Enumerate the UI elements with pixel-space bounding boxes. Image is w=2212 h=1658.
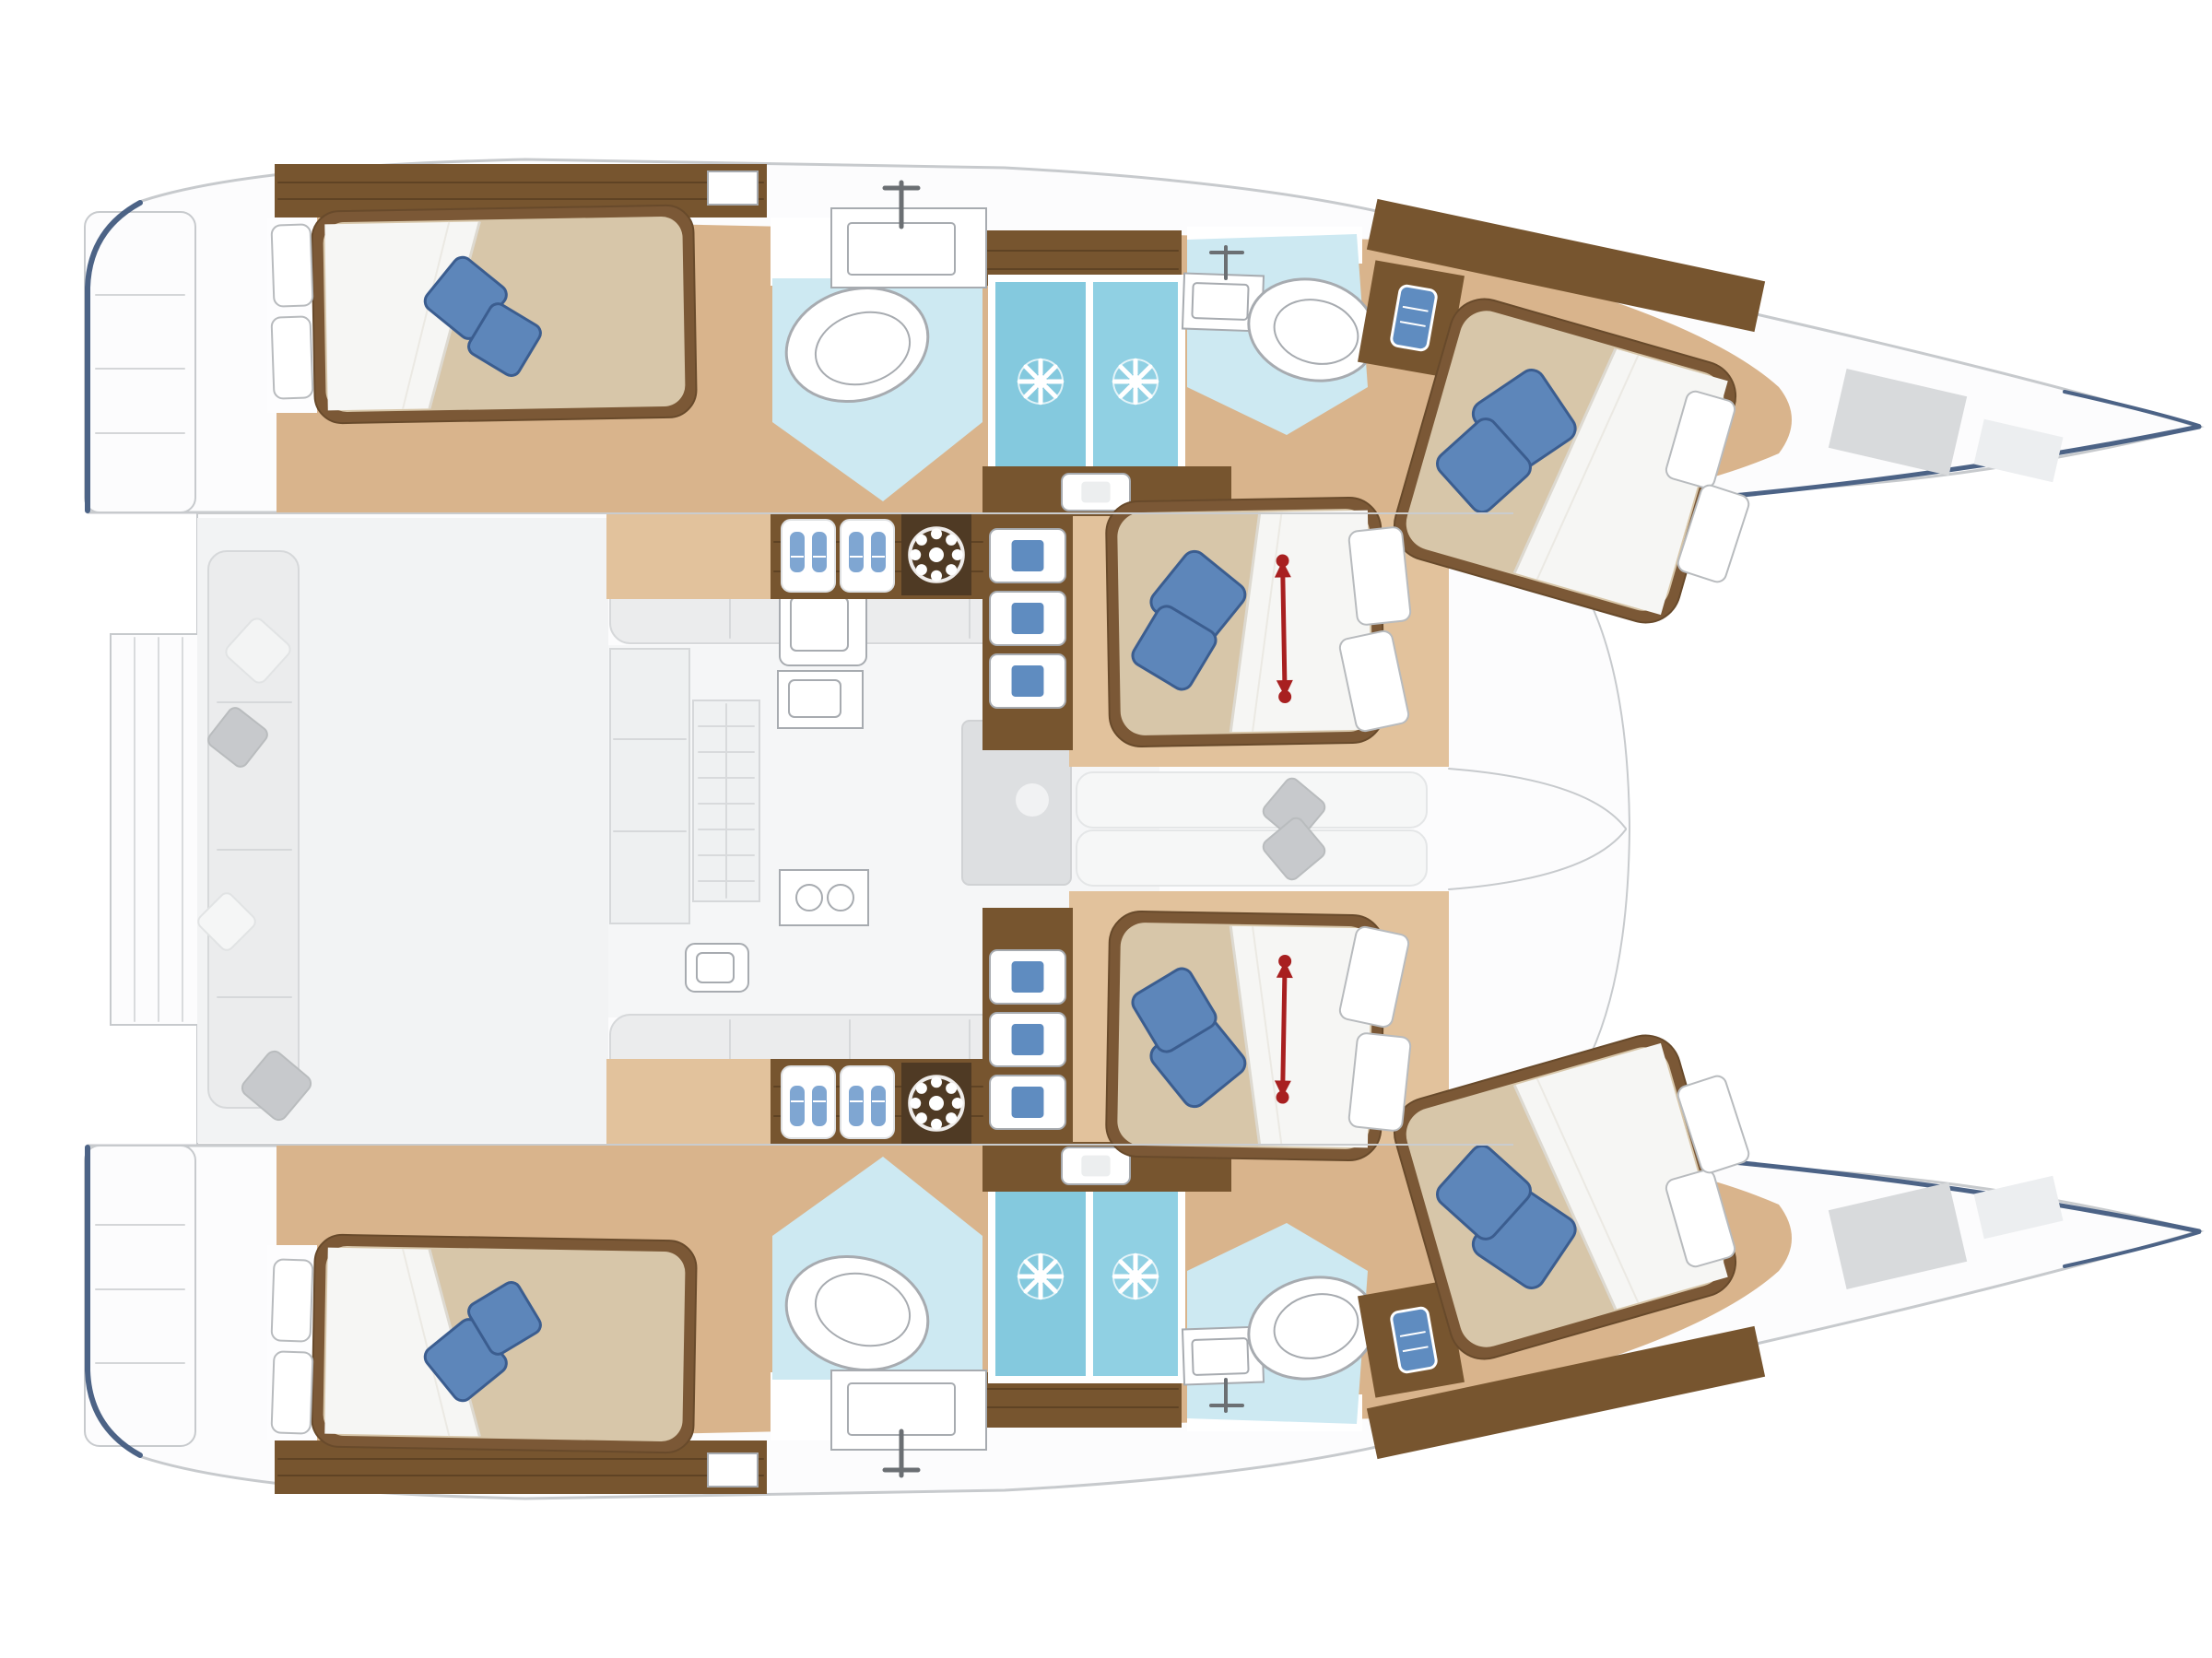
slippers-icon-1-starboard: [782, 1066, 835, 1138]
shower-head-icon-2: [1113, 359, 1158, 404]
galley-cabinet: [610, 649, 689, 923]
corridor-wood: [606, 514, 772, 599]
deck-hatch-aft-starboard: [708, 1453, 758, 1487]
mid-cabin-step-drawer-3: [990, 654, 1065, 708]
aft-cabin-bed-starboard: [312, 1234, 697, 1452]
bow-lounge-seat: [1077, 772, 1427, 828]
aft-cabin-window-2: [271, 316, 312, 398]
mid-cabin-bed-starboard: [1106, 911, 1385, 1160]
mid-cabin-window-1-starboard: [1348, 1032, 1411, 1132]
aft-bathroom-sink: [831, 208, 986, 288]
transom-platform-starboard: [85, 1146, 195, 1446]
mid-cabin-step-drawer-1: [990, 529, 1065, 582]
center-steps: [111, 634, 199, 1025]
mid-cabin-header-drawer-starboard: [1062, 1147, 1130, 1184]
aft-cabin-window-1-starboard: [271, 1351, 312, 1433]
shower-head-icon-1-starboard: [1018, 1254, 1063, 1299]
floorplan-canvas: [0, 0, 2212, 1658]
slippers-icon-1: [782, 520, 835, 592]
mid-cabin-step-drawer-3-starboard: [990, 950, 1065, 1004]
shower-head-icon-1: [1018, 359, 1063, 404]
slippers-icon-2: [841, 520, 894, 592]
corridor-wood-starboard: [606, 1059, 772, 1144]
galley-stove: [780, 870, 868, 925]
aft-cabin-bed: [312, 205, 697, 423]
transom-platform: [85, 212, 195, 512]
deck-hatch-aft: [708, 171, 758, 205]
mid-cabin-header-drawer: [1062, 474, 1130, 511]
mid-cabin-step-drawer-2-starboard: [990, 1013, 1065, 1066]
aft-cabin-window-2-starboard: [271, 1259, 312, 1341]
shower-head-icon-2-starboard: [1113, 1254, 1158, 1299]
mid-cabin-window-1: [1348, 526, 1411, 626]
mid-cabin-step-drawer-1-starboard: [990, 1076, 1065, 1129]
aft-bathroom-sink-starboard: [831, 1370, 986, 1450]
mid-cabin-bed: [1106, 497, 1385, 747]
slippers-icon-2-starboard: [841, 1066, 894, 1138]
mid-cabin-step-drawer-2: [990, 592, 1065, 645]
salon-table-highlight: [1016, 783, 1049, 817]
bow-lounge-seat-starboard: [1077, 830, 1427, 886]
catamaran-floorplan: [0, 0, 2212, 1658]
washing-machine-icon-starboard: [901, 1063, 971, 1144]
washing-machine-icon: [901, 514, 971, 595]
galley-appliance: [686, 944, 748, 992]
aft-cabin-window-1: [271, 224, 312, 306]
